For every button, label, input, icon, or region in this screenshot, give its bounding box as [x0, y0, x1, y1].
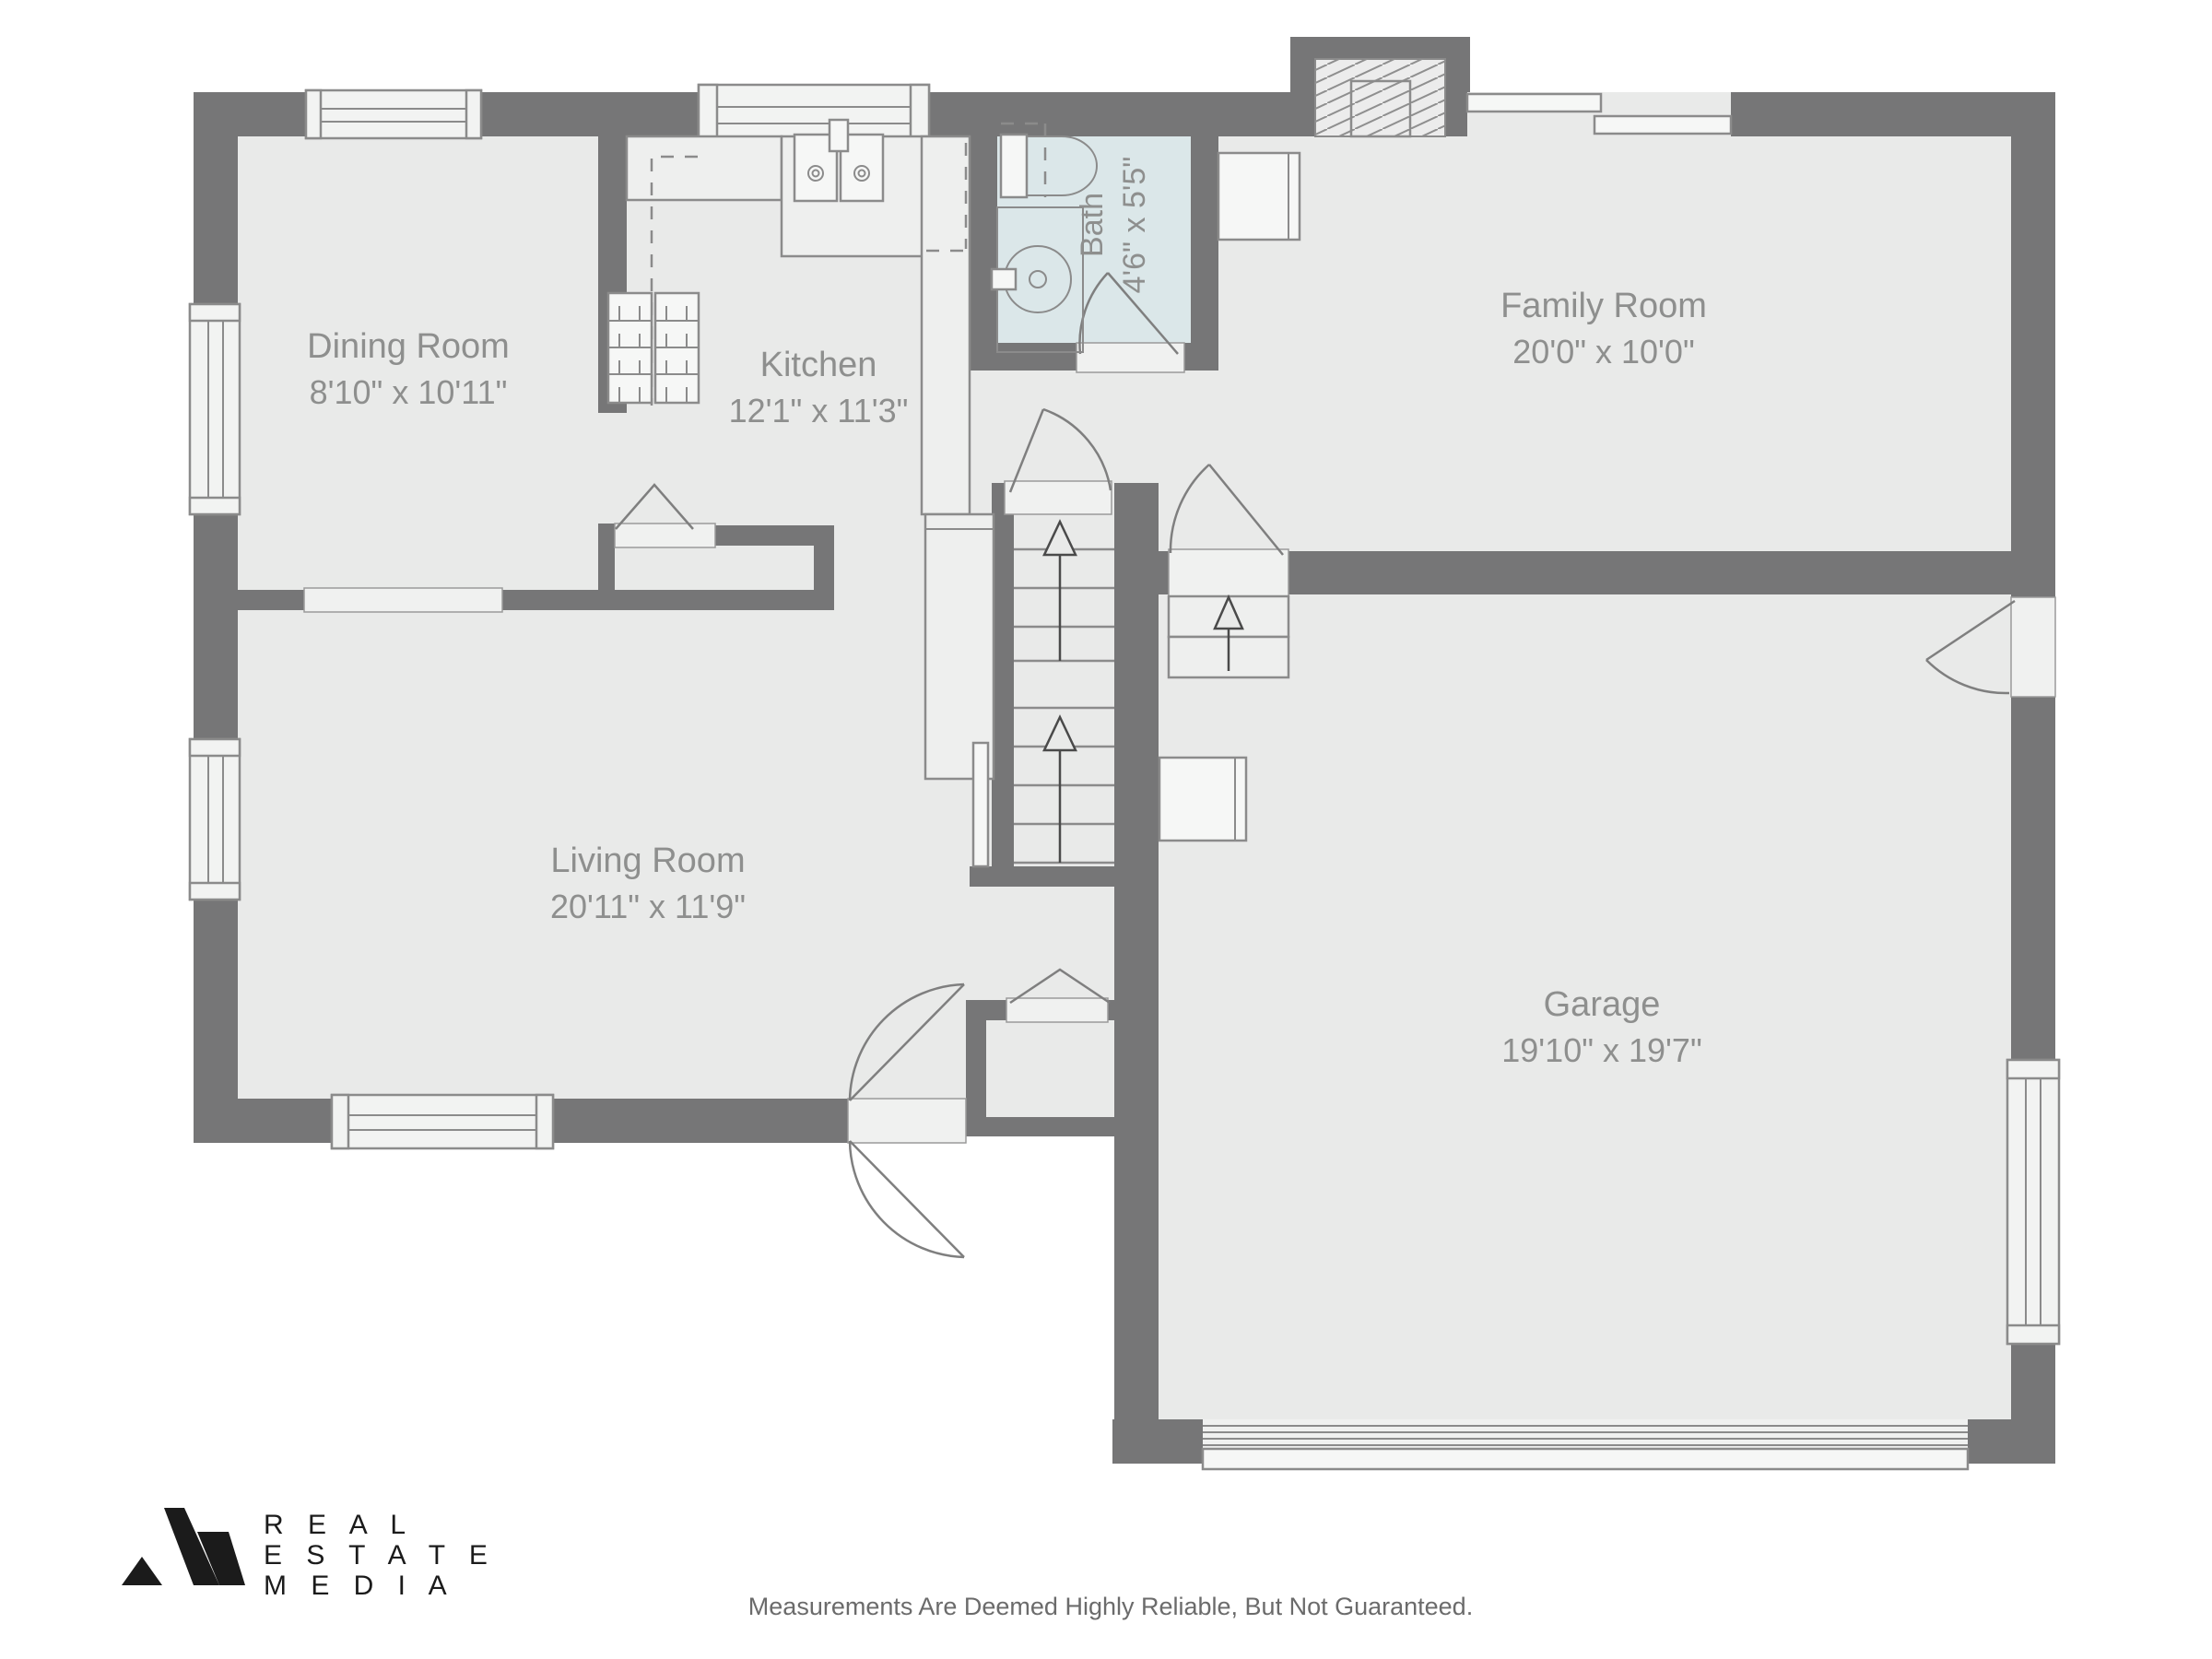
- wall-closet-kitchen-right: [814, 546, 834, 590]
- logo-line-1: R E A L: [264, 1510, 414, 1540]
- family-room-dims: 20'0" x 10'0": [1512, 333, 1694, 371]
- family-sliding-door: [1467, 92, 1731, 136]
- logo-mark-icon: [122, 1508, 245, 1585]
- logo-text: R E A L E S T A T E M E D I A: [264, 1510, 496, 1601]
- floor-plan: Dining Room 8'10" x 10'11" Kitchen 12'1"…: [0, 0, 2212, 1659]
- disclaimer-text: Measurements Are Deemed Highly Reliable,…: [748, 1593, 1473, 1620]
- wall-stair-left: [992, 483, 1014, 866]
- kitchen-fridge: [925, 514, 994, 779]
- living-bottom-window: [332, 1095, 553, 1148]
- stair-rail: [973, 743, 988, 866]
- living-room-name: Living Room: [550, 841, 745, 880]
- garage-door: [1203, 1419, 1968, 1469]
- bath-name: Bath: [1075, 193, 1110, 257]
- wall-bath-left: [970, 92, 997, 371]
- wall-stair-bottom: [970, 866, 1115, 887]
- kitchen-name: Kitchen: [760, 346, 877, 384]
- wall-closet-kitchen-top: [715, 525, 834, 546]
- garage-dims: 19'10" x 19'7": [1501, 1031, 1701, 1069]
- dining-living-opening: [304, 588, 502, 612]
- wall-closet-entry-bottom: [966, 1117, 1120, 1136]
- kitchen-counter-right: [922, 136, 970, 514]
- kitchen-counter-left: [627, 136, 782, 200]
- living-left-window: [190, 739, 240, 900]
- dining-room-name: Dining Room: [307, 327, 510, 366]
- garage-name: Garage: [1544, 985, 1661, 1024]
- wall-closet-entry-left: [966, 1000, 986, 1136]
- wall-bath-bottom-right: [1184, 343, 1218, 371]
- dining-top-window: [306, 90, 481, 138]
- logo: R E A L E S T A T E M E D I A: [122, 1508, 496, 1601]
- bath-dims: 4'6" x 5'5": [1117, 157, 1152, 294]
- logo-line-3: M E D I A: [264, 1571, 455, 1601]
- kitchen-dims: 12'1" x 11'3": [729, 392, 909, 429]
- living-room-dims: 20'11" x 11'9": [550, 888, 746, 925]
- wall-left: [194, 92, 238, 1143]
- garage-right-window: [2007, 1060, 2059, 1344]
- dining-room-dims: 8'10" x 10'11": [310, 373, 508, 411]
- family-fixture: [1218, 153, 1300, 240]
- wall-garage-left: [1114, 483, 1159, 1464]
- logo-line-2: E S T A T E: [264, 1540, 496, 1571]
- family-room-name: Family Room: [1500, 287, 1707, 325]
- wall-stub: [598, 524, 615, 610]
- chimney-hatch: [1315, 59, 1445, 136]
- chimney: [1290, 37, 1470, 136]
- dining-left-window: [190, 304, 240, 514]
- garage-furnace: [1159, 758, 1246, 841]
- wall-bath-bottom-left: [970, 343, 1077, 371]
- wall-bath-right: [1191, 92, 1218, 371]
